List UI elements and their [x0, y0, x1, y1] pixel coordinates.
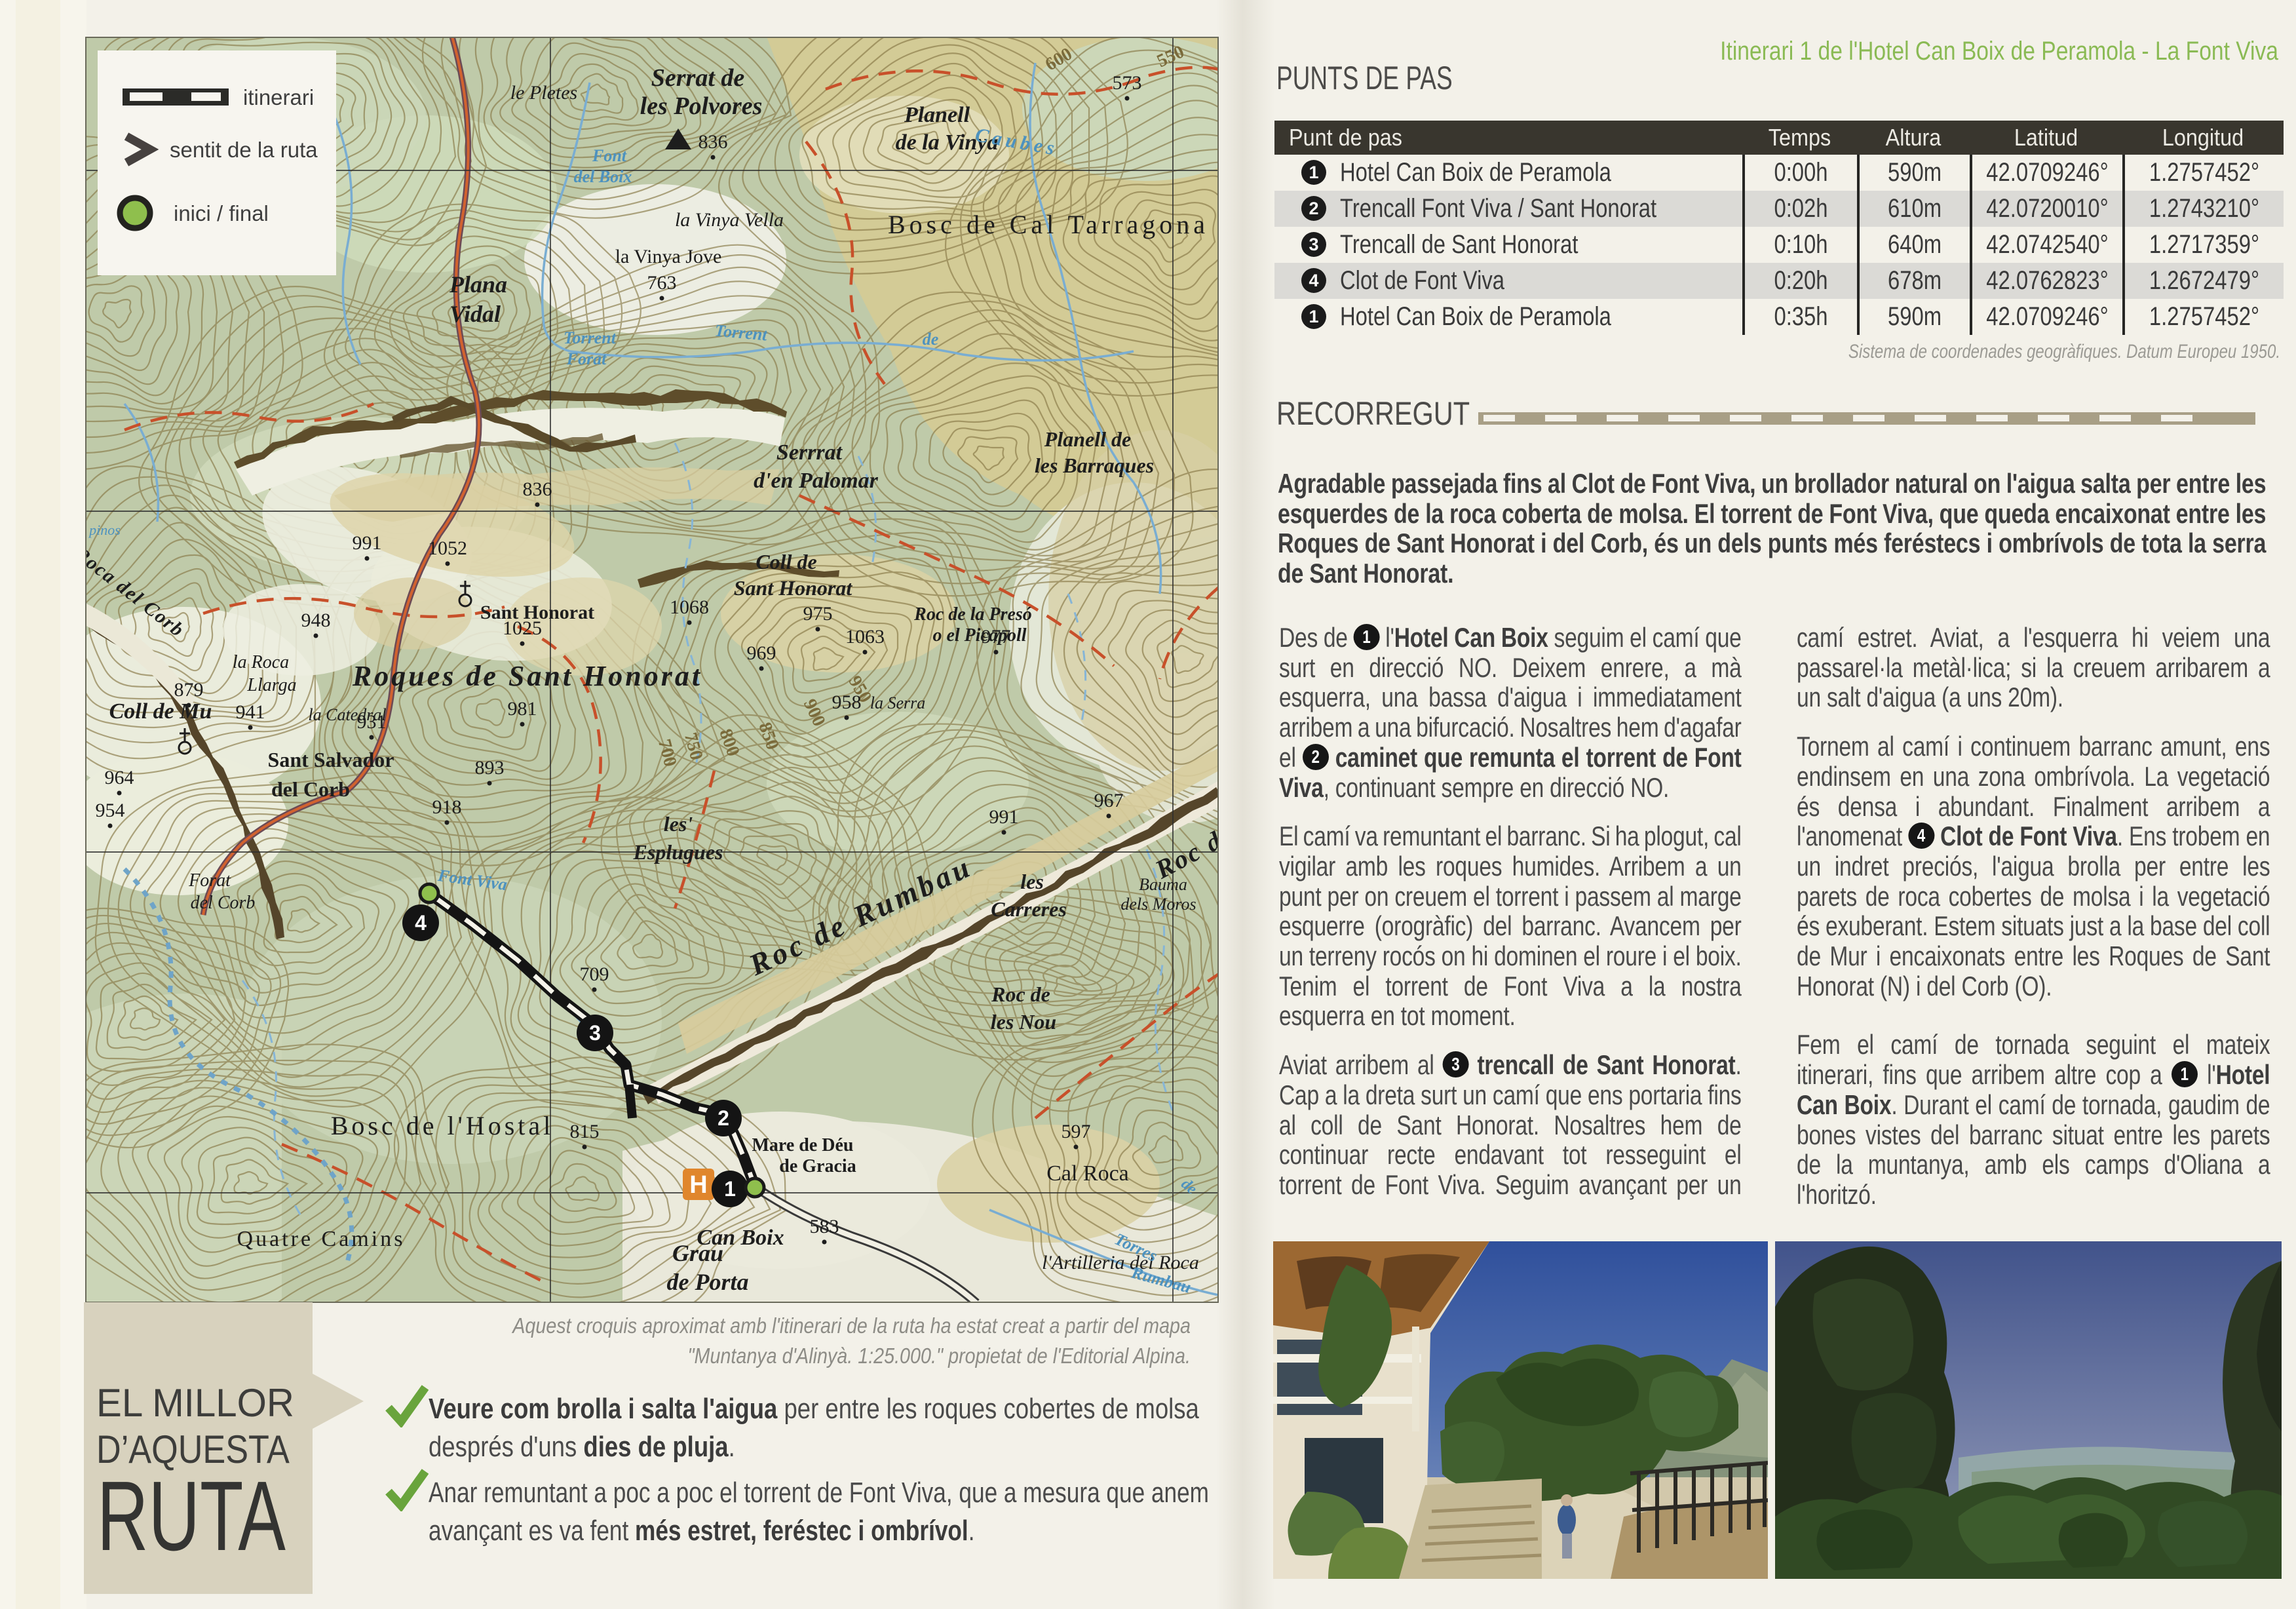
svg-text:Carreres: Carreres	[991, 897, 1067, 921]
svg-text:Torrent: Torrent	[564, 328, 617, 347]
svg-text:Bauma: Bauma	[1139, 875, 1187, 894]
svg-text:1: 1	[724, 1177, 736, 1201]
svg-text:les: les	[1020, 870, 1044, 893]
svg-text:3: 3	[589, 1021, 601, 1045]
svg-text:le Pletes: le Pletes	[510, 82, 577, 104]
svg-text:964: 964	[105, 767, 134, 788]
svg-text:o el Picapoll: o el Picapoll	[932, 625, 1026, 646]
svg-text:de Porta: de Porta	[667, 1269, 749, 1295]
svg-text:les': les'	[664, 812, 693, 836]
svg-text:948: 948	[301, 610, 331, 631]
svg-text:958: 958	[832, 691, 862, 713]
svg-text:931: 931	[357, 711, 387, 733]
svg-text:Serrrat: Serrrat	[776, 440, 843, 465]
svg-text:918: 918	[432, 796, 462, 818]
svg-text:Vidal: Vidal	[450, 301, 501, 327]
svg-text:763: 763	[647, 272, 677, 294]
svg-text:Sant Honorat: Sant Honorat	[734, 576, 853, 600]
svg-text:dels Moros: dels Moros	[1120, 895, 1196, 914]
svg-text:del Boix: del Boix	[574, 167, 632, 186]
svg-text:la Roca: la Roca	[233, 652, 289, 672]
svg-text:l'Artilleria del Roca: l'Artilleria del Roca	[1042, 1252, 1199, 1273]
svg-text:1025: 1025	[503, 617, 542, 639]
svg-text:Sant Salvador: Sant Salvador	[268, 748, 394, 771]
svg-text:Plana: Plana	[449, 271, 507, 298]
svg-text:709: 709	[580, 963, 609, 985]
svg-text:la Vinya Jove: la Vinya Jove	[615, 246, 722, 267]
svg-text:Quatre Camins: Quatre Camins	[237, 1227, 406, 1251]
svg-text:Planell: Planell	[904, 103, 970, 127]
svg-text:597: 597	[1062, 1121, 1091, 1142]
svg-text:4: 4	[415, 911, 427, 935]
svg-text:Planell de: Planell de	[1044, 427, 1131, 451]
svg-text:Esplugues: Esplugues	[633, 840, 723, 864]
svg-text:991: 991	[353, 532, 382, 554]
svg-text:del Corb: del Corb	[271, 777, 350, 801]
svg-text:583: 583	[810, 1216, 839, 1237]
svg-text:Bosc de l'Hostal: Bosc de l'Hostal	[331, 1111, 554, 1140]
svg-text:Coll de: Coll de	[756, 550, 816, 573]
svg-text:Can Boix: Can Boix	[697, 1226, 784, 1250]
svg-text:1052: 1052	[428, 537, 467, 559]
svg-text:836: 836	[698, 131, 728, 153]
svg-text:Roc de la Presó: Roc de la Presó	[913, 604, 1032, 625]
svg-text:Roc de: Roc de	[991, 982, 1050, 1006]
svg-text:1063: 1063	[845, 626, 885, 648]
svg-text:H: H	[689, 1171, 707, 1199]
svg-text:de: de	[923, 330, 939, 349]
svg-text:les Nou: les Nou	[991, 1010, 1056, 1034]
svg-text:pinos: pinos	[88, 522, 121, 538]
svg-text:del Corb: del Corb	[191, 893, 256, 913]
svg-text:de Gracia: de Gracia	[779, 1156, 856, 1176]
svg-text:sentit de la ruta: sentit de la ruta	[170, 138, 318, 162]
svg-text:inici / final: inici / final	[174, 201, 269, 225]
svg-text:la Serra: la Serra	[870, 693, 926, 712]
svg-text:Llarga: Llarga	[246, 675, 296, 695]
svg-text:981: 981	[508, 698, 537, 720]
svg-text:Cal Roca: Cal Roca	[1046, 1161, 1129, 1186]
svg-text:815: 815	[570, 1121, 600, 1142]
svg-text:itinerari: itinerari	[243, 85, 314, 109]
svg-text:573: 573	[1113, 72, 1142, 94]
svg-text:Mare de Déu: Mare de Déu	[752, 1135, 854, 1155]
svg-text:Forat: Forat	[566, 349, 607, 368]
svg-text:879: 879	[174, 679, 204, 701]
svg-text:Forat: Forat	[188, 870, 231, 891]
svg-text:les Polvores: les Polvores	[640, 92, 763, 120]
svg-text:d'en Palomar: d'en Palomar	[754, 469, 879, 493]
svg-text:967: 967	[1094, 790, 1124, 811]
svg-text:Font: Font	[592, 146, 627, 165]
svg-text:2: 2	[717, 1106, 729, 1130]
svg-text:977: 977	[982, 626, 1011, 648]
svg-text:991: 991	[989, 806, 1019, 828]
svg-text:les Barraques: les Barraques	[1035, 454, 1154, 477]
svg-text:1068: 1068	[670, 596, 709, 618]
svg-text:Roques de Sant Honorat: Roques de Sant Honorat	[352, 660, 702, 692]
svg-text:954: 954	[96, 800, 125, 821]
svg-text:Serrat de: Serrat de	[651, 64, 745, 92]
svg-text:969: 969	[747, 642, 776, 664]
svg-text:836: 836	[523, 478, 552, 500]
svg-text:975: 975	[803, 603, 833, 625]
svg-text:Coll de Mu: Coll de Mu	[109, 699, 212, 724]
svg-text:893: 893	[475, 757, 505, 779]
svg-text:Bosc de Cal Tarragona: Bosc de Cal Tarragona	[888, 210, 1209, 239]
svg-text:941: 941	[236, 701, 265, 723]
svg-text:la Vinya Vella: la Vinya Vella	[675, 209, 784, 231]
